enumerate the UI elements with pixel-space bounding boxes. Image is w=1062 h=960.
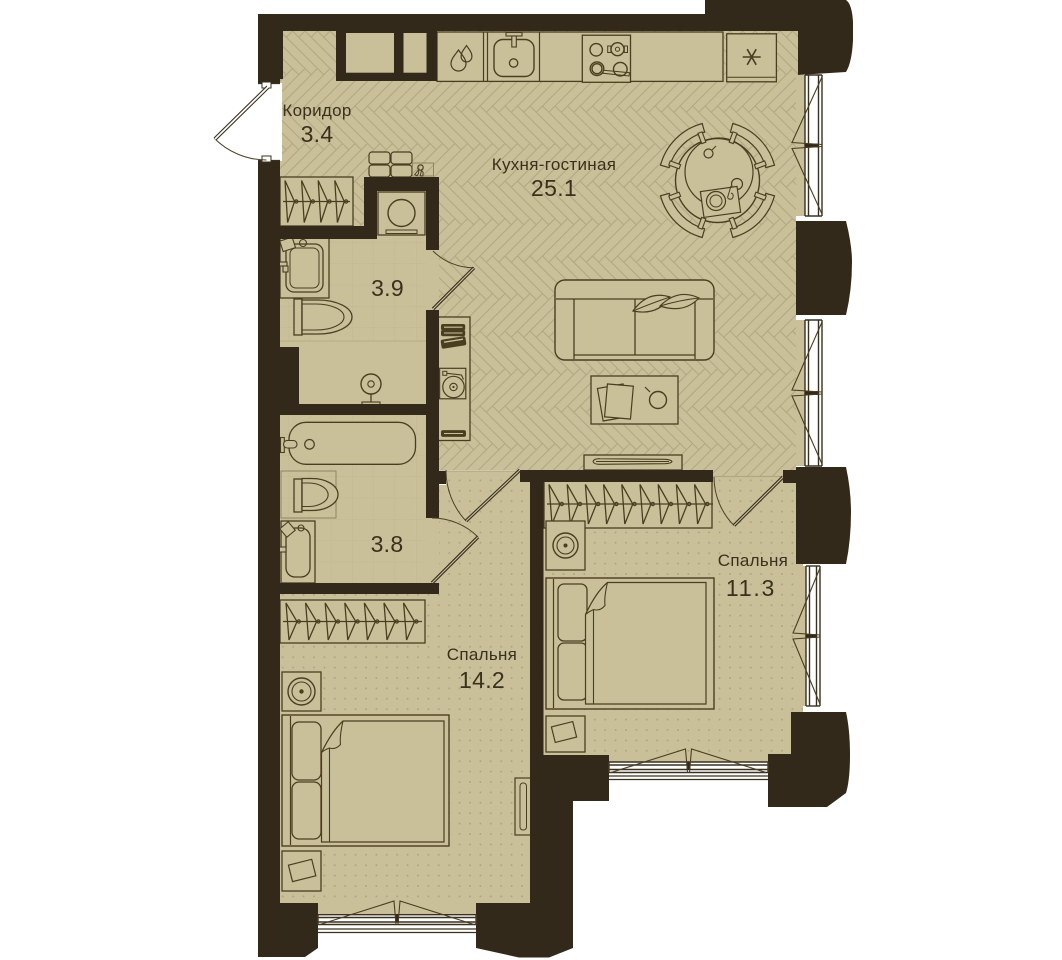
svg-text:3.9: 3.9 <box>371 275 404 301</box>
svg-text:Спальня: Спальня <box>718 551 788 570</box>
svg-text:11.3: 11.3 <box>726 575 776 601</box>
svg-text:14.2: 14.2 <box>459 667 505 693</box>
svg-text:Спальня: Спальня <box>447 645 517 664</box>
svg-text:3.4: 3.4 <box>301 121 334 147</box>
svg-text:25.1: 25.1 <box>531 175 577 201</box>
svg-text:Коридор: Коридор <box>282 101 351 120</box>
svg-text:Кухня-гостиная: Кухня-гостиная <box>492 155 616 174</box>
svg-text:3.8: 3.8 <box>371 531 404 557</box>
